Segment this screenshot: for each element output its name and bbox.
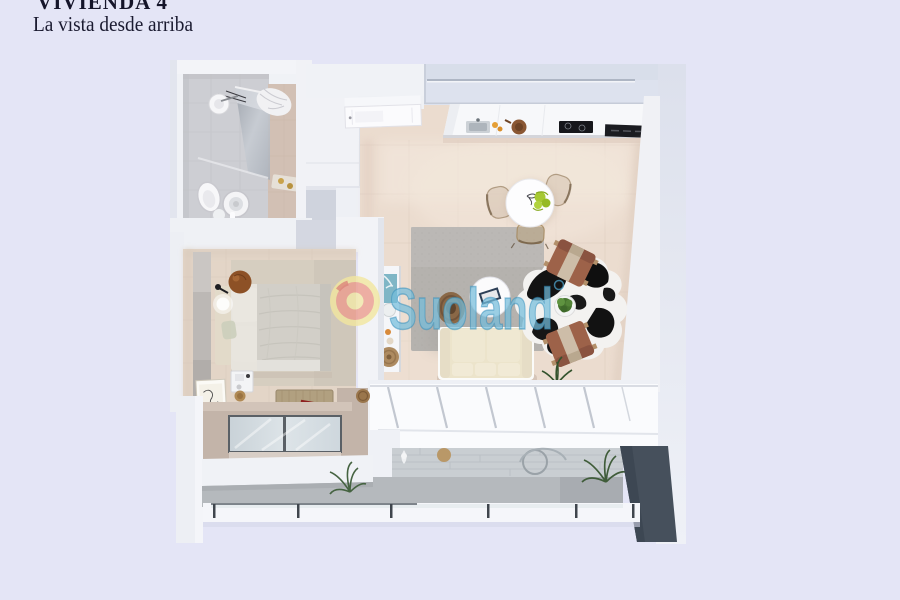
svg-text:La vista desde arriba: La vista desde arriba <box>33 12 194 36</box>
svg-text:Suoland: Suoland <box>389 277 553 342</box>
